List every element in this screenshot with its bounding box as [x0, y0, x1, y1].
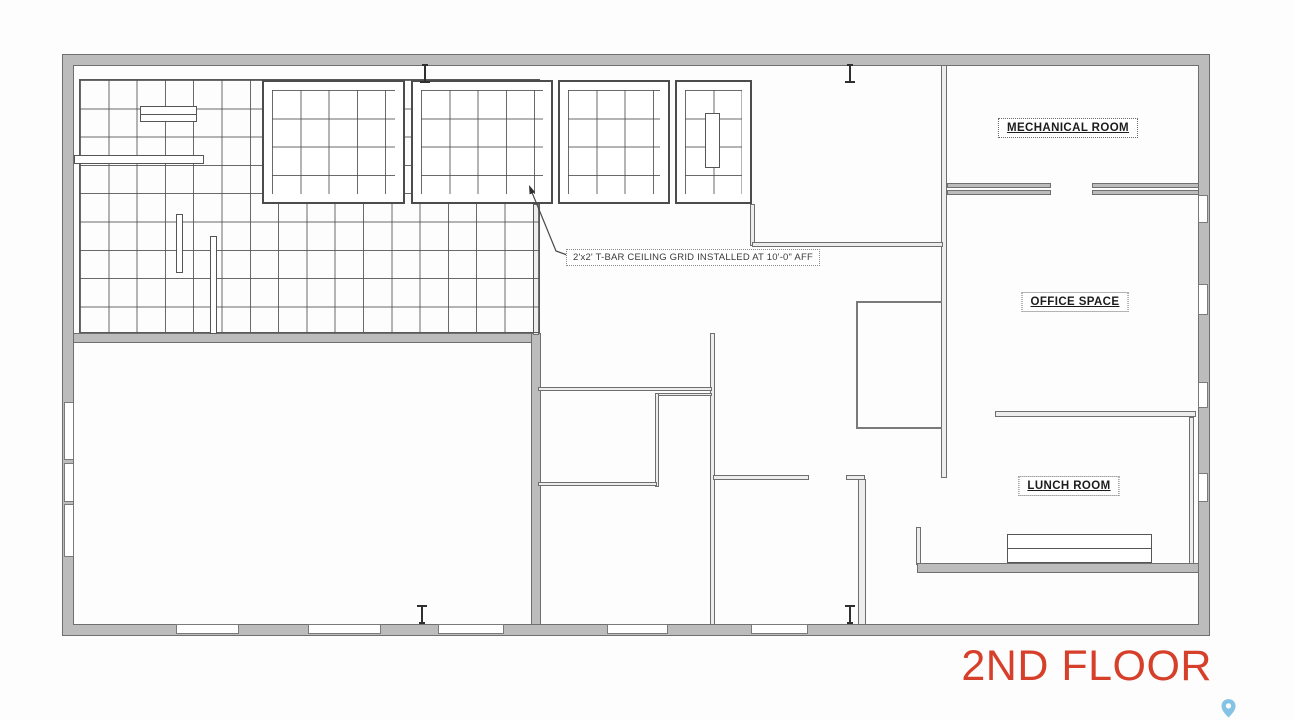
window-opening — [1198, 195, 1208, 223]
room-label-lunch-room: LUNCH ROOM — [1018, 476, 1119, 496]
window-opening — [308, 624, 381, 634]
column-symbol-icon — [842, 602, 858, 624]
window-opening — [607, 624, 668, 634]
column-symbol-icon — [417, 64, 433, 86]
window-opening — [64, 402, 74, 460]
floor-plan-canvas: MECHANICAL ROOM OFFICE SPACE LUNCH ROOM … — [0, 0, 1294, 720]
lunch-table — [1007, 534, 1152, 563]
plan-title: 2ND FLOOR — [961, 642, 1212, 691]
window-opening — [1198, 284, 1208, 315]
window-opening — [438, 624, 504, 634]
window-opening — [176, 624, 239, 634]
room-label-mechanical-room: MECHANICAL ROOM — [998, 118, 1138, 138]
column-symbol-icon — [842, 64, 858, 86]
column-symbol-icon — [414, 602, 430, 624]
window-opening — [64, 504, 74, 557]
window-opening — [751, 624, 808, 634]
ceiling-grid-annotation: 2'x2' T-BAR CEILING GRID INSTALLED AT 10… — [566, 249, 820, 266]
window-opening — [1198, 382, 1208, 408]
room-label-office-space: OFFICE SPACE — [1022, 292, 1129, 312]
map-pin-icon — [1221, 699, 1236, 718]
window-opening — [1198, 473, 1208, 502]
window-opening — [64, 463, 74, 502]
